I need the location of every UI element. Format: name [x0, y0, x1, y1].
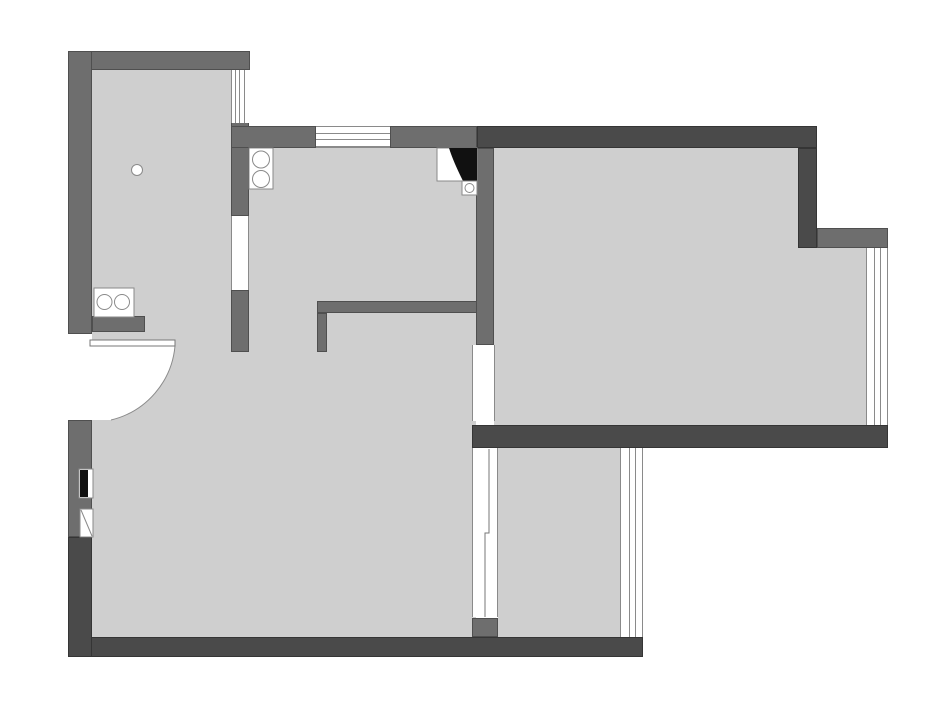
sink-bowl-icon — [465, 184, 474, 193]
sliding-door-line-icon — [485, 449, 489, 617]
door-leaf-icon — [90, 340, 175, 346]
stove-burner-bottom-icon — [253, 171, 270, 188]
ceiling-light-icon — [132, 165, 143, 176]
electric-panel-icon — [80, 470, 88, 497]
fixtures-layer — [0, 0, 940, 708]
stove-burner-top-icon — [253, 151, 270, 168]
hob-burner-left-icon — [97, 295, 112, 310]
hob-burner-right-icon — [115, 295, 130, 310]
floor-plan — [0, 0, 940, 708]
